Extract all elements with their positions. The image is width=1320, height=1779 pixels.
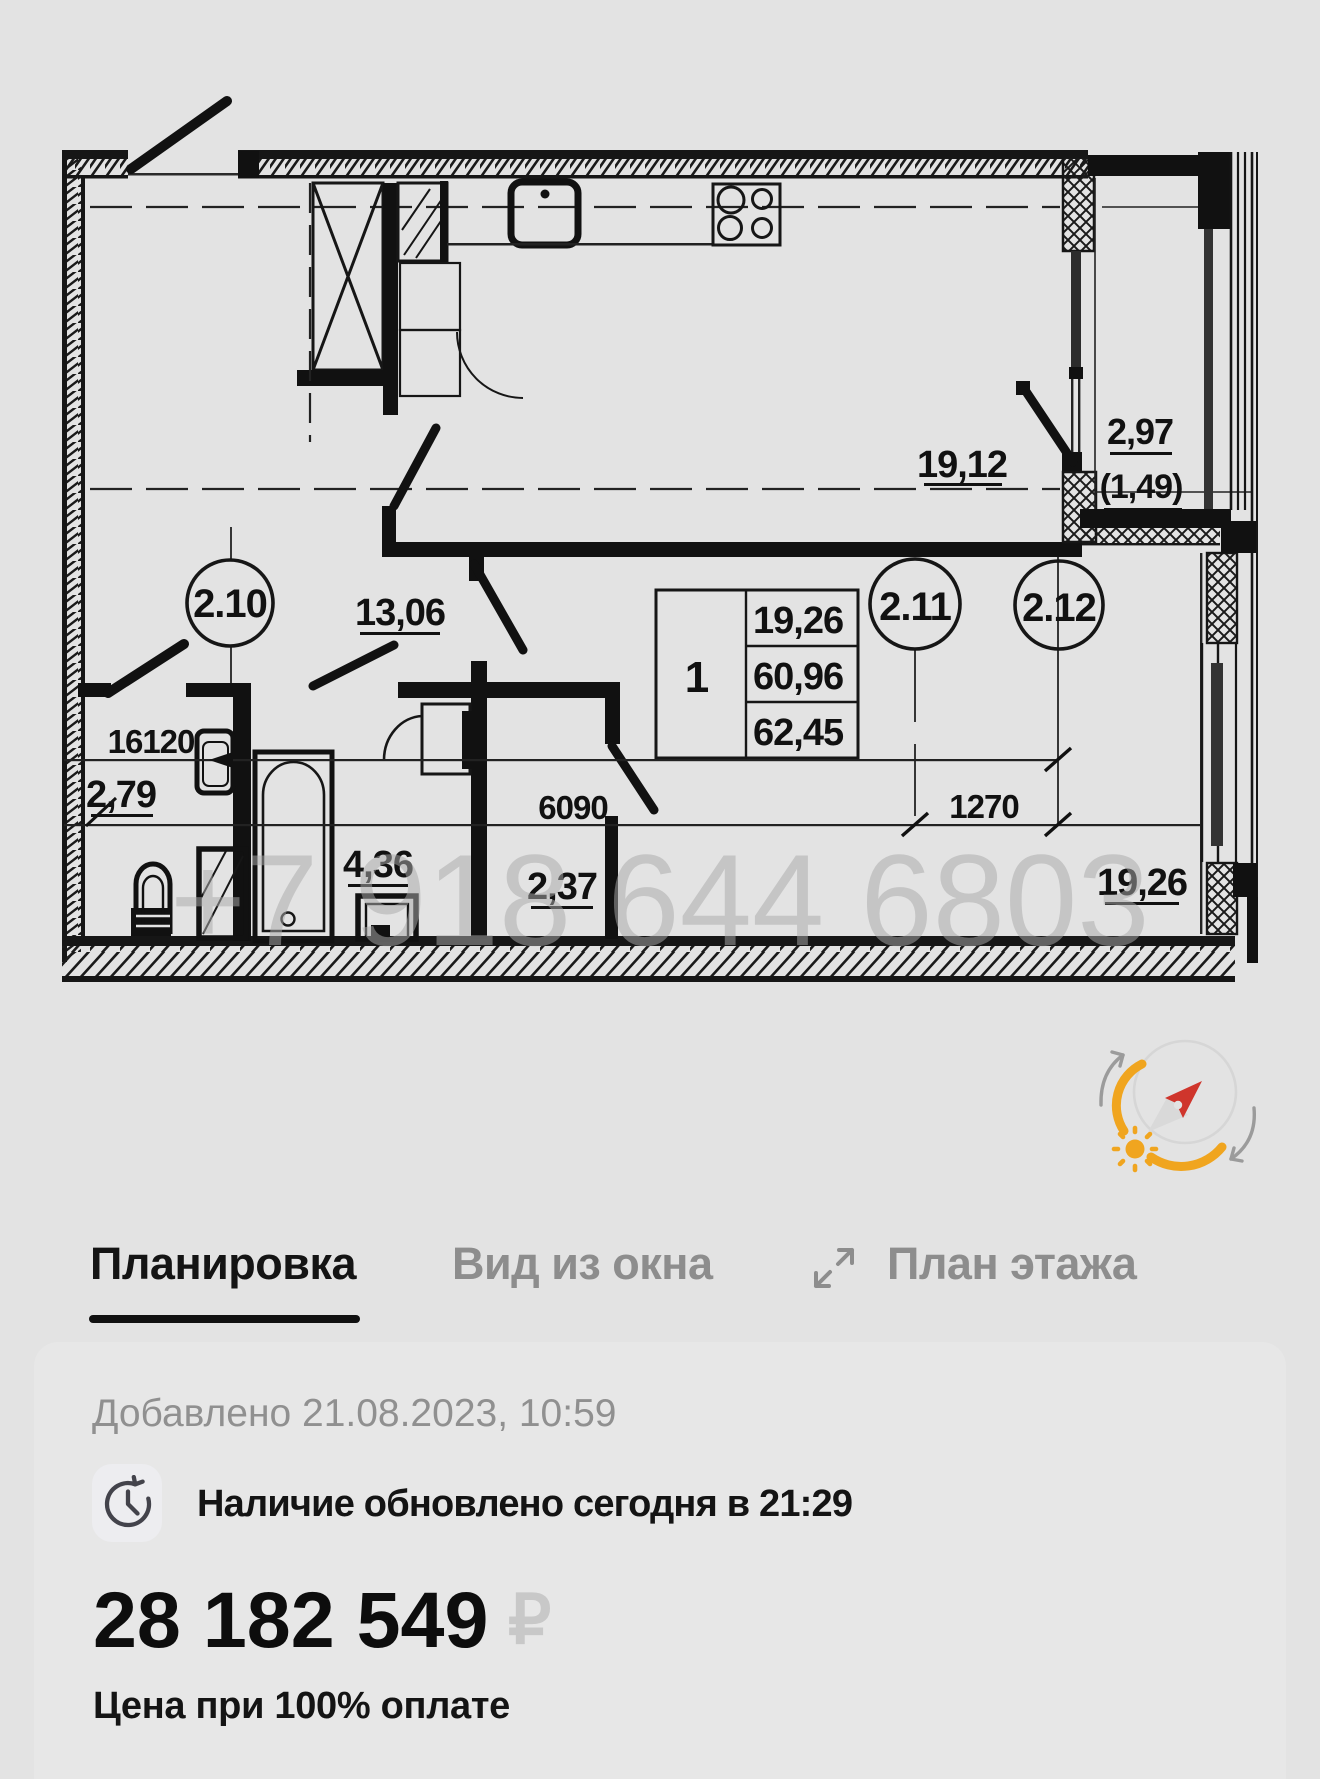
- svg-text:2,79: 2,79: [86, 774, 156, 816]
- svg-text:19,12: 19,12: [917, 444, 1007, 486]
- svg-text:1: 1: [685, 653, 709, 702]
- svg-text:2.10: 2.10: [193, 582, 267, 626]
- svg-text:2.11: 2.11: [879, 585, 951, 629]
- svg-text:2,97: 2,97: [1107, 411, 1173, 452]
- svg-text:60,96: 60,96: [753, 656, 843, 698]
- svg-text:1270: 1270: [949, 788, 1018, 825]
- svg-text:6090: 6090: [538, 789, 607, 826]
- svg-text:13,06: 13,06: [355, 592, 445, 634]
- svg-text:(1,49): (1,49): [1100, 468, 1183, 506]
- svg-text:16120: 16120: [108, 723, 195, 760]
- svg-text:+7 918 644 6803: +7 918 644 6803: [170, 827, 1150, 973]
- svg-text:2.12: 2.12: [1022, 586, 1096, 630]
- svg-text:62,45: 62,45: [753, 712, 844, 754]
- svg-text:19,26: 19,26: [753, 600, 843, 642]
